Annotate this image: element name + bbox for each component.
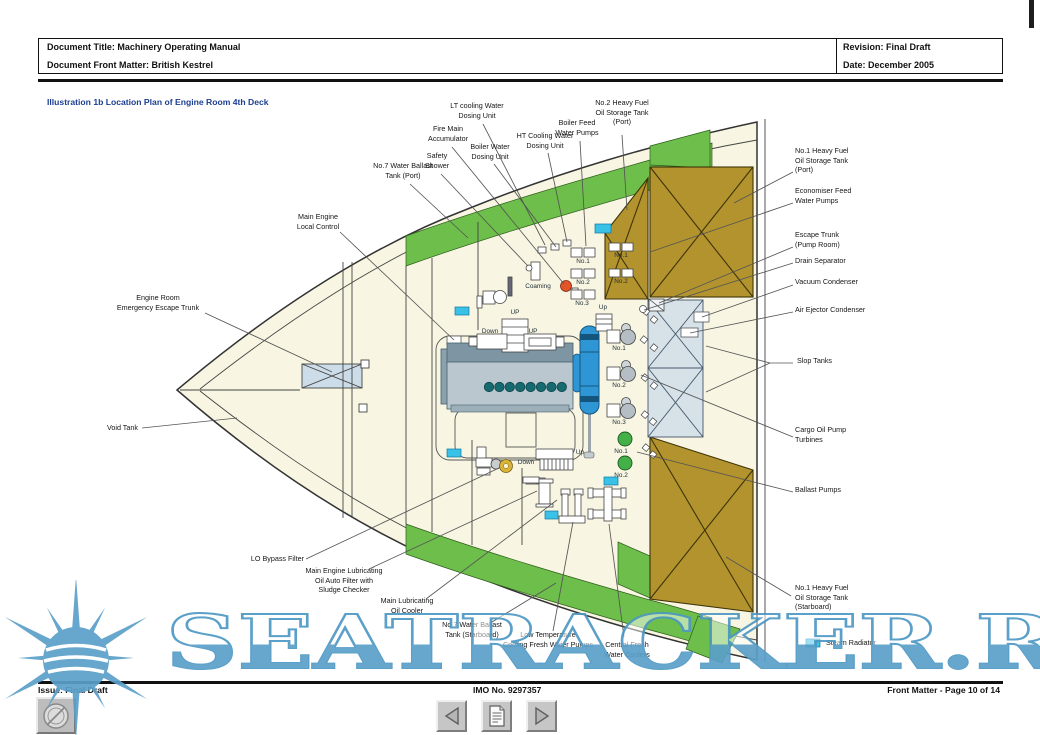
label-lt-cooling-water-dosing-unit: LT cooling Water Dosing Unit xyxy=(450,101,503,120)
label-vacuum-condenser: Vacuum Condenser xyxy=(795,277,858,287)
label-coaming: Coaming xyxy=(525,283,551,290)
label-cop-turbine-3: No.3 xyxy=(612,419,626,426)
label-bfw-pump-2: No.2 xyxy=(576,279,590,286)
label-central-fw-coolers: Central Fresh Water Coolers xyxy=(604,640,650,659)
no1-hfo-tank-port xyxy=(650,167,753,297)
label-stair-down-2: Down xyxy=(518,459,534,466)
label-econ-pump-1: No.1 xyxy=(614,252,628,259)
footer-rule xyxy=(38,681,1003,684)
label-me-lo-auto-filter: Main Engine Lubricating Oil Auto Filter … xyxy=(305,566,382,595)
steam-radiator-legend-swatch xyxy=(806,639,820,647)
label-no1-hfo-starboard: No.1 Heavy Fuel Oil Storage Tank (Starbo… xyxy=(795,583,849,612)
viewer-logo-button[interactable] xyxy=(36,697,76,734)
label-fire-main-accumulator: Fire Main Accumulator xyxy=(428,124,468,143)
label-econ-pump-2: No.2 xyxy=(614,278,628,285)
label-no7-wb-starboard: No.7 Water Ballast Tank (Starboard) xyxy=(442,620,502,639)
label-escape-trunk-pump-room: Escape Trunk (Pump Room) xyxy=(795,230,840,249)
vacuum-condenser-symbol xyxy=(694,312,709,322)
label-main-lo-cooler: Main Lubricating Oil Cooler xyxy=(381,596,434,615)
label-boiler-water-dosing-unit: Boiler Water Dosing Unit xyxy=(470,142,509,161)
label-ballast-pump-1: No.1 xyxy=(614,448,628,455)
engine-room-plan xyxy=(0,0,1040,735)
manual-page: Document Title: Machinery Operating Manu… xyxy=(0,0,1040,735)
next-page-button[interactable] xyxy=(526,700,557,732)
label-air-ejector-condenser: Air Ejector Condenser xyxy=(795,305,865,315)
air-ejector-condenser-symbol xyxy=(681,328,698,337)
pump-room-escape-trunk xyxy=(649,299,664,311)
prev-page-button[interactable] xyxy=(436,700,467,732)
label-no2-hfo-port: No.2 Heavy Fuel Oil Storage Tank (Port) xyxy=(595,98,649,127)
footer-issue: Issue: Final Draft xyxy=(38,685,108,695)
label-lo-bypass-filter: LO Bypass Filter xyxy=(251,554,304,564)
label-boiler-feed-water-pumps: Boiler Feed Water Pumps xyxy=(555,118,598,137)
footer-page: Front Matter - Page 10 of 14 xyxy=(887,685,1000,695)
label-stair-down-1: Down xyxy=(482,328,498,335)
label-economiser-feed-water-pumps: Economiser Feed Water Pumps xyxy=(795,186,851,205)
label-stair-up-2: UP xyxy=(529,328,538,335)
label-bfw-pump-1: No.1 xyxy=(576,258,590,265)
compass-circle-icon xyxy=(41,701,71,731)
lt-cooling-fw-pumps-symbol xyxy=(559,516,585,523)
label-no1-hfo-port: No.1 Heavy Fuel Oil Storage Tank (Port) xyxy=(795,146,849,175)
label-stair-up-4: Up xyxy=(576,449,584,456)
label-ballast-pump-2: No.2 xyxy=(614,472,628,479)
label-main-engine-local-control: Main Engine Local Control xyxy=(297,212,339,231)
label-cop-turbine-1: No.1 xyxy=(612,345,626,352)
document-icon xyxy=(487,704,507,728)
label-steam-radiator: Steam Radiator xyxy=(826,638,876,648)
label-bfw-pump-3: No.3 xyxy=(575,300,589,307)
label-no7-wb-port: No.7 Water Ballast Tank (Port) xyxy=(373,161,433,180)
label-ballast-pumps: Ballast Pumps xyxy=(795,485,841,495)
label-cargo-oil-pump-turbines: Cargo Oil Pump Turbines xyxy=(795,425,846,444)
footer-imo: IMO No. 9297357 xyxy=(473,685,541,695)
label-cop-turbine-2: No.2 xyxy=(612,382,626,389)
label-engine-room-emergency-escape-trunk: Engine Room Emergency Escape Trunk xyxy=(117,293,199,312)
contents-button[interactable] xyxy=(481,700,512,732)
central-fw-coolers-symbol xyxy=(604,487,612,521)
label-lt-cooling-fw-pumps: Low Temperature Cooling Fresh Water Pump… xyxy=(503,630,593,649)
label-stair-up-3: Up xyxy=(599,304,607,311)
label-drain-separator: Drain Separator xyxy=(795,256,846,266)
left-triangle-icon xyxy=(443,706,461,726)
label-stair-up-1: UP xyxy=(511,309,520,316)
label-slop-tanks: Slop Tanks xyxy=(797,356,832,366)
right-triangle-icon xyxy=(533,706,551,726)
label-void-tank: Void Tank xyxy=(107,423,138,433)
